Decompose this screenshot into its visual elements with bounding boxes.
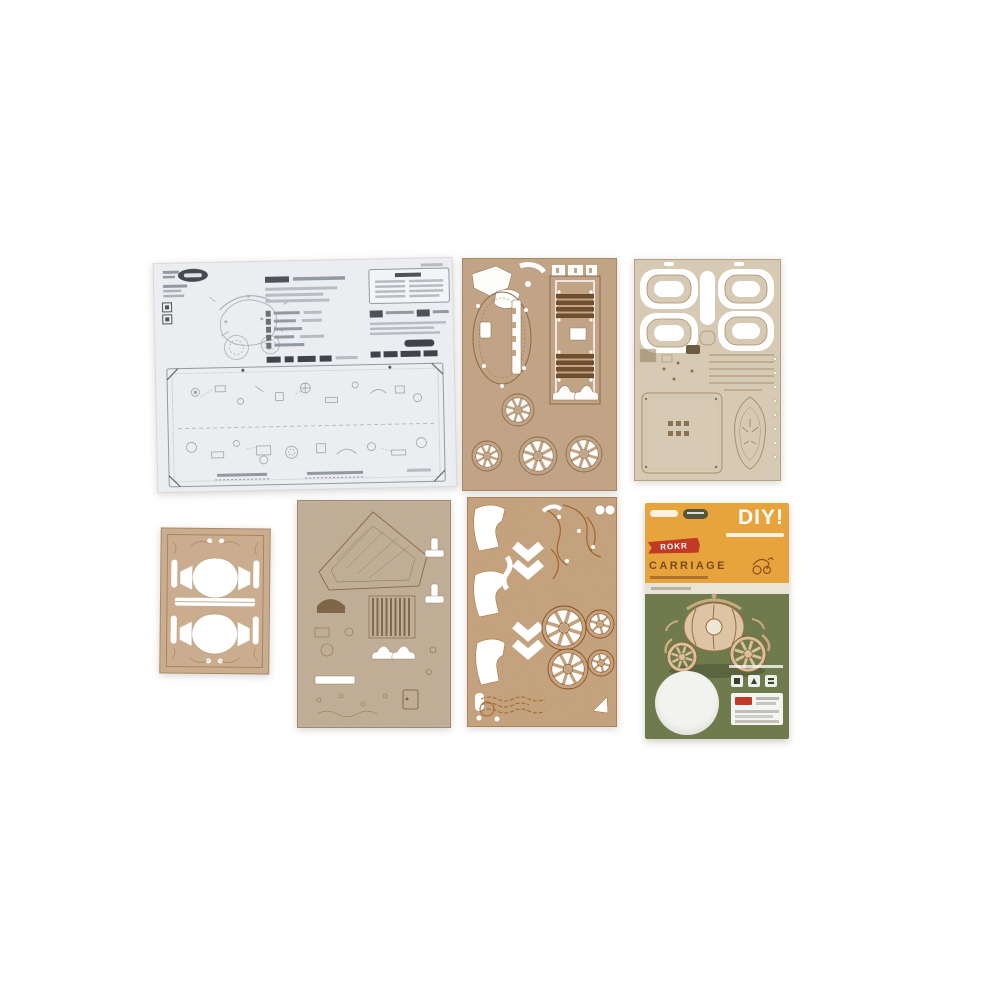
parts-sheet-roof-panels bbox=[634, 259, 781, 481]
wheel-part bbox=[502, 394, 534, 426]
parts-sheet-ornate-wheels bbox=[467, 497, 617, 727]
model-code-box bbox=[731, 693, 783, 725]
parts-sheet-engraved-walls bbox=[297, 500, 451, 728]
assembled-model-photo bbox=[652, 587, 782, 688]
wheel-part bbox=[519, 437, 557, 475]
diy-label: DIY! bbox=[738, 507, 784, 528]
product-name-label: CARRIAGE bbox=[649, 560, 727, 572]
instruction-sheet bbox=[153, 257, 458, 493]
wheel-part bbox=[588, 650, 614, 676]
parts-sheet-chassis-wheels bbox=[462, 258, 617, 491]
brand-tag bbox=[683, 509, 708, 519]
packaging-card: DIY! ROKR CARRIAGE bbox=[645, 503, 789, 739]
ribbon-label: ROKR bbox=[660, 541, 688, 551]
die-cut-circle bbox=[655, 671, 719, 735]
wheel-part bbox=[548, 649, 588, 689]
header-subtext-line bbox=[650, 576, 708, 579]
model-number-mark bbox=[735, 697, 752, 705]
safety-mark-icon-1 bbox=[731, 675, 743, 687]
instruction-sheet-graphic bbox=[153, 257, 458, 493]
diy-subtext-line bbox=[726, 533, 784, 537]
carriage-ornament-icon bbox=[749, 553, 775, 582]
brand-script-logo bbox=[650, 510, 678, 517]
wheel-part bbox=[542, 606, 586, 650]
safety-mark-icon-2 bbox=[748, 675, 760, 687]
wheel-part bbox=[586, 610, 614, 638]
wheel-part bbox=[566, 436, 602, 472]
card-small-text-line bbox=[729, 665, 783, 668]
wheel-part bbox=[472, 441, 502, 471]
product-photo-canvas: DIY! ROKR CARRIAGE bbox=[0, 0, 1000, 1000]
parts-sheet-ornate-small bbox=[159, 527, 271, 674]
safety-mark-icon-3 bbox=[765, 675, 777, 687]
